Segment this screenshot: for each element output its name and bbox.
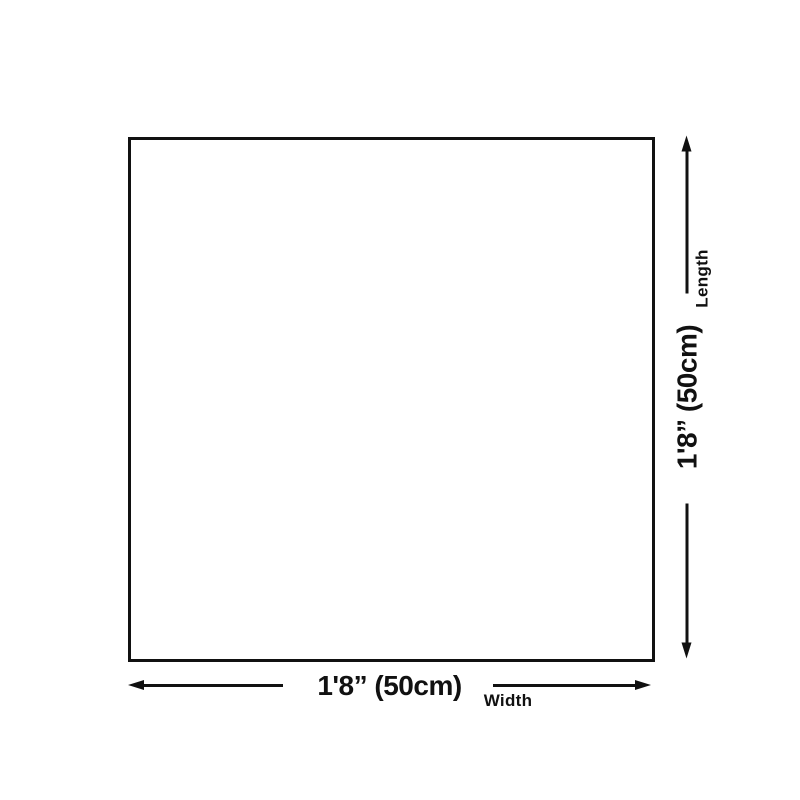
up-arrow-icon: [682, 136, 692, 152]
product-outline: [128, 137, 655, 662]
length-dimension: 1'8” (50cm) Length: [673, 136, 717, 659]
dimension-diagram: 1'8” (50cm) Width 1'8” (50cm) Length: [0, 0, 800, 800]
width-dimension: 1'8” (50cm) Width: [128, 671, 651, 715]
width-label: Width: [438, 692, 578, 710]
dimension-line-top: [686, 151, 689, 294]
right-arrow-icon: [635, 680, 651, 690]
length-label: Length: [694, 209, 712, 349]
dimension-line-right: [493, 684, 636, 687]
